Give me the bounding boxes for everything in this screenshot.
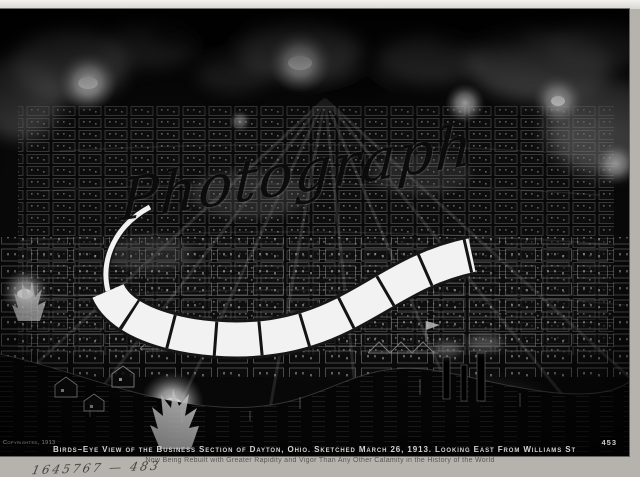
plate-number: 453 xyxy=(601,438,617,447)
photo-caption-title: Birds–Eye View of the Business Section o… xyxy=(0,445,629,454)
photograph: Photograph Copyrighted, 1913 Birds–Eye V… xyxy=(0,9,629,456)
photo-mat-top-border xyxy=(0,0,640,9)
scanned-photograph-page: { "photo": { "watermark_text": "Photogra… xyxy=(0,0,640,474)
photo-mat-bottom: Now Being Rebuilt with Greater Rapidity … xyxy=(0,456,640,474)
filmstrip-watermark-icon xyxy=(0,9,629,456)
